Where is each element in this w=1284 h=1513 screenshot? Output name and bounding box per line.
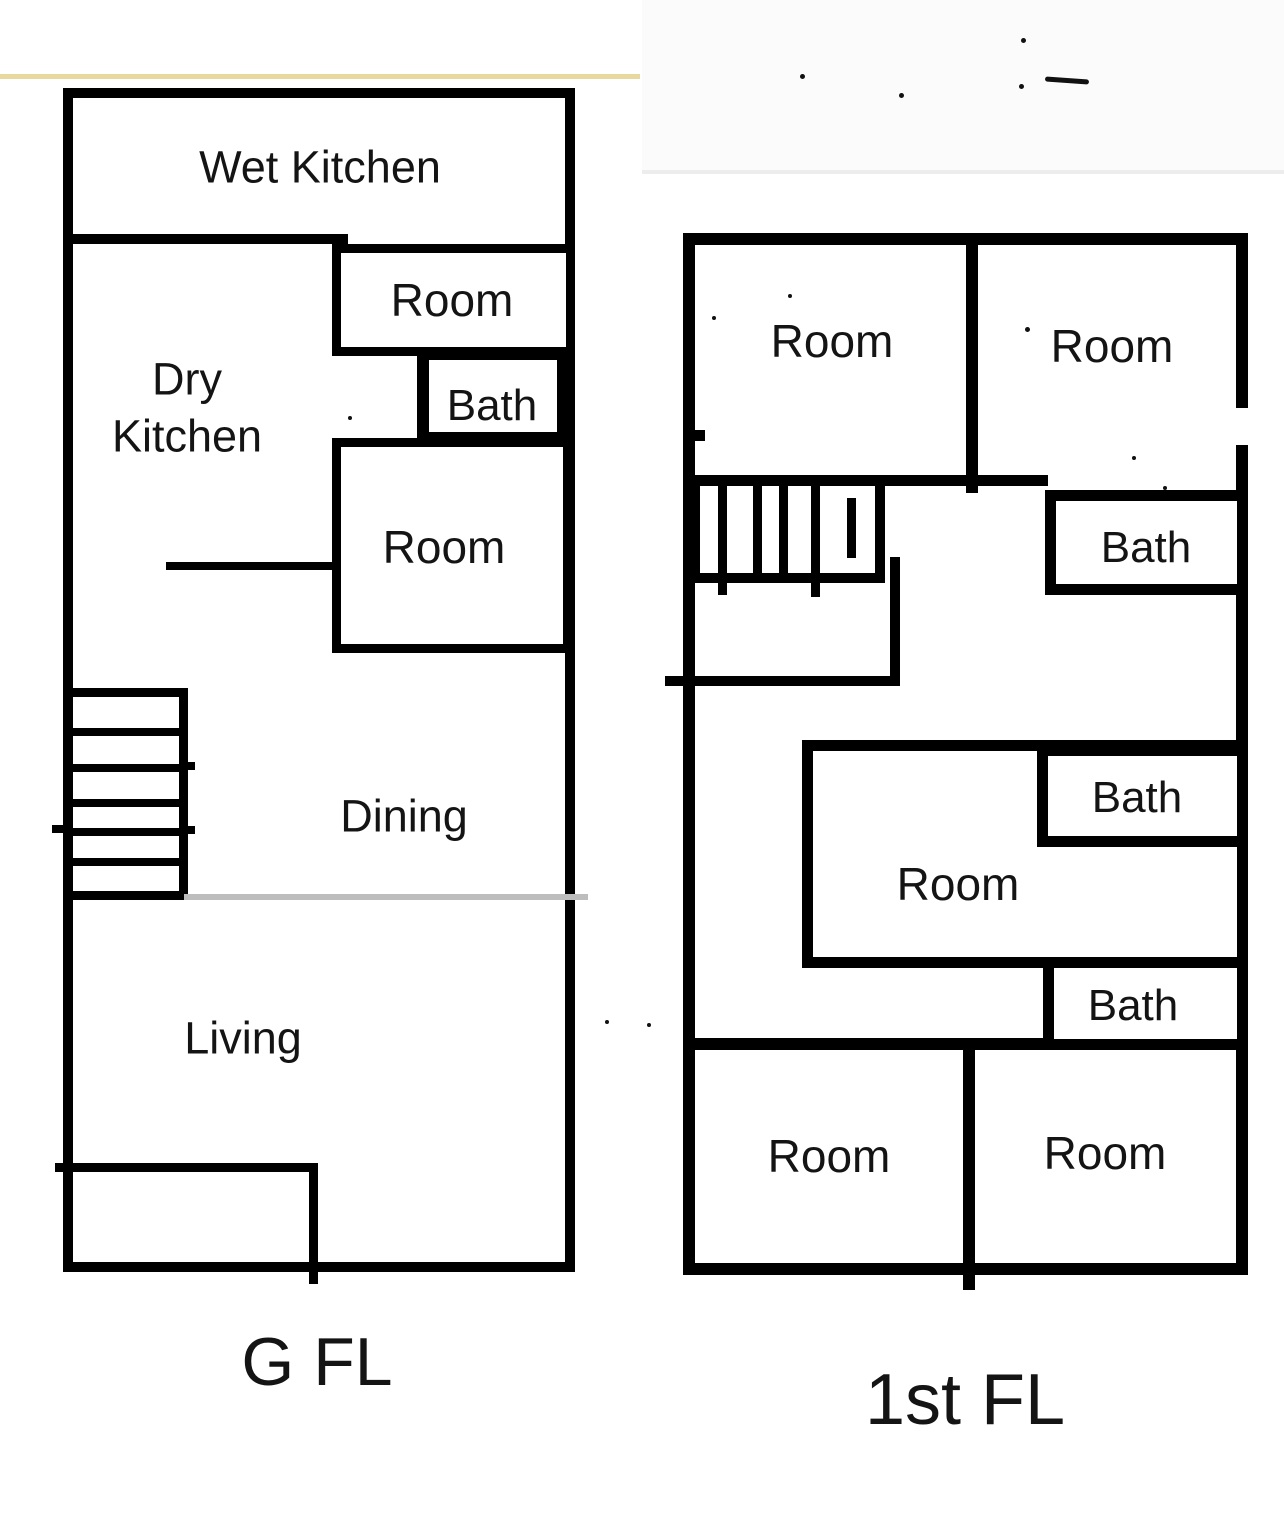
wall	[63, 88, 73, 1272]
room-label-dining: Dining	[340, 794, 468, 839]
scan-artifact-band	[642, 0, 1284, 170]
scan-speck	[899, 93, 904, 98]
stair-edge	[63, 688, 188, 697]
stair-tread	[63, 728, 179, 736]
wall	[55, 1163, 318, 1172]
room-label-bottom-left: Room	[768, 1133, 891, 1179]
room-label-dry-kitchen-line2: Kitchen	[112, 414, 262, 459]
stair-tread	[811, 486, 820, 573]
room-label-bath-lower: Bath	[1088, 984, 1179, 1028]
scan-speck	[1132, 456, 1136, 460]
room-label-bath: Bath	[447, 384, 538, 428]
scan-speck	[800, 74, 805, 79]
wall	[309, 1163, 318, 1284]
wall	[890, 557, 900, 686]
room-label-room-top: Room	[391, 277, 514, 323]
scan-speck	[605, 1020, 609, 1024]
window-gap	[1236, 408, 1248, 445]
scan-speck	[1025, 327, 1030, 332]
stair-tread	[63, 858, 179, 866]
stair-edge	[63, 891, 188, 900]
scan-speck	[348, 416, 352, 420]
scan-speck	[1021, 38, 1026, 43]
scan-speck	[712, 316, 716, 320]
stair-edge	[690, 486, 700, 583]
room-label-room-mid: Room	[383, 524, 506, 570]
stair-tread	[847, 498, 856, 558]
scan-speck	[788, 294, 792, 298]
stair-tread	[779, 486, 788, 573]
scan-speck	[647, 1023, 651, 1027]
scan-speck	[1019, 84, 1024, 89]
wall	[683, 475, 1048, 486]
wall	[63, 234, 348, 244]
stair-tread	[753, 486, 762, 573]
stair-tick	[52, 825, 68, 833]
room-label-dry-kitchen-line1: Dry	[152, 357, 222, 402]
wall	[63, 1262, 575, 1272]
room-label-bottom-right: Room	[1044, 1130, 1167, 1176]
scan-speck	[1163, 486, 1167, 490]
stair-tread	[63, 799, 179, 807]
wall-stub	[683, 430, 705, 441]
stair-edge	[690, 573, 885, 583]
wall-stub	[166, 562, 332, 570]
room-label-top-right: Room	[1051, 323, 1174, 369]
room-label-bath-upper: Bath	[1101, 526, 1192, 570]
wall	[683, 233, 695, 1275]
floor-title-ffl: 1st FL	[865, 1364, 1065, 1436]
stair-tread	[718, 486, 727, 573]
stair-tick	[179, 826, 195, 834]
scan-artifact-line	[642, 170, 1284, 174]
stair-edge	[179, 688, 188, 900]
room-label-room-middle: Room	[897, 861, 1020, 907]
top-accent-line	[0, 74, 640, 79]
room-label-wet-kitchen: Wet Kitchen	[199, 145, 441, 190]
stair-tread	[63, 764, 179, 772]
wall	[665, 676, 900, 686]
wall	[63, 88, 575, 98]
wall	[966, 233, 978, 493]
stair-tick	[718, 583, 727, 595]
floor-title-gfl: G FL	[241, 1328, 392, 1396]
living-dining-divider	[184, 894, 588, 900]
stair-tick	[811, 583, 820, 597]
room-label-top-left: Room	[771, 318, 894, 364]
stair-edge	[875, 486, 885, 583]
room-label-living: Living	[184, 1016, 302, 1061]
room-label-bath-middle: Bath	[1092, 776, 1183, 820]
wall	[963, 1050, 975, 1290]
stair-tick	[179, 762, 195, 770]
floor-plan-image: Wet Kitchen Room Dry Kitchen Bath Room D…	[0, 0, 1284, 1513]
stair-tread	[63, 828, 179, 836]
